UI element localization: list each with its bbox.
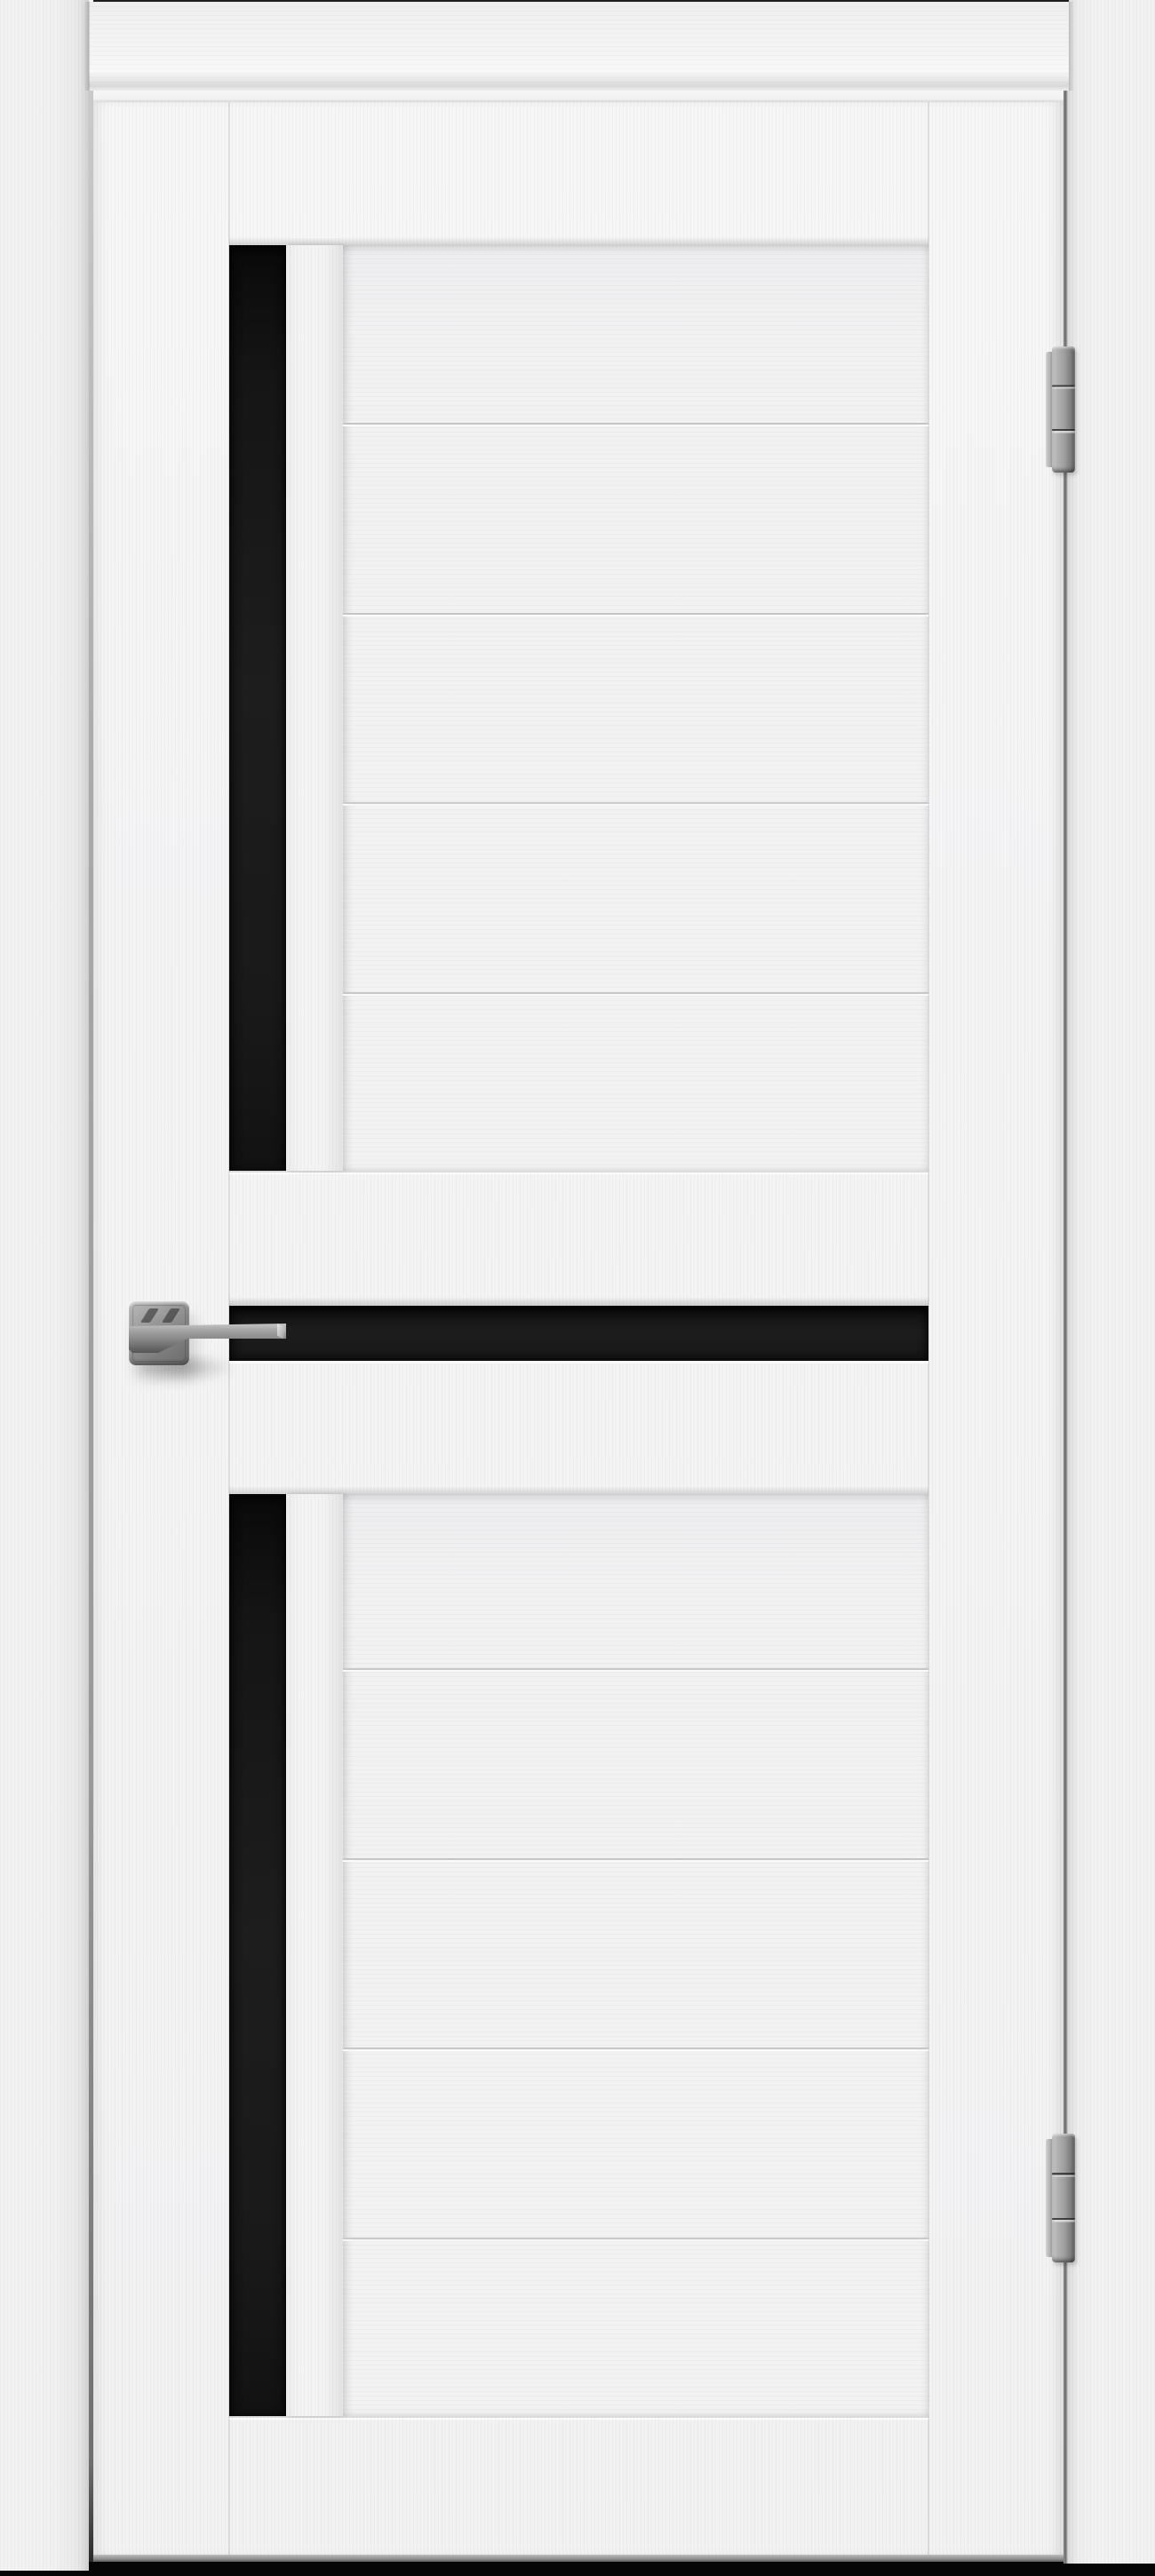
door-hinge-bottom (1052, 2134, 1075, 2262)
handle-lever (129, 1323, 286, 1353)
hardware-layer (0, 0, 1155, 2576)
door-product-photo (0, 0, 1155, 2576)
door-hinge-top (1052, 346, 1075, 473)
